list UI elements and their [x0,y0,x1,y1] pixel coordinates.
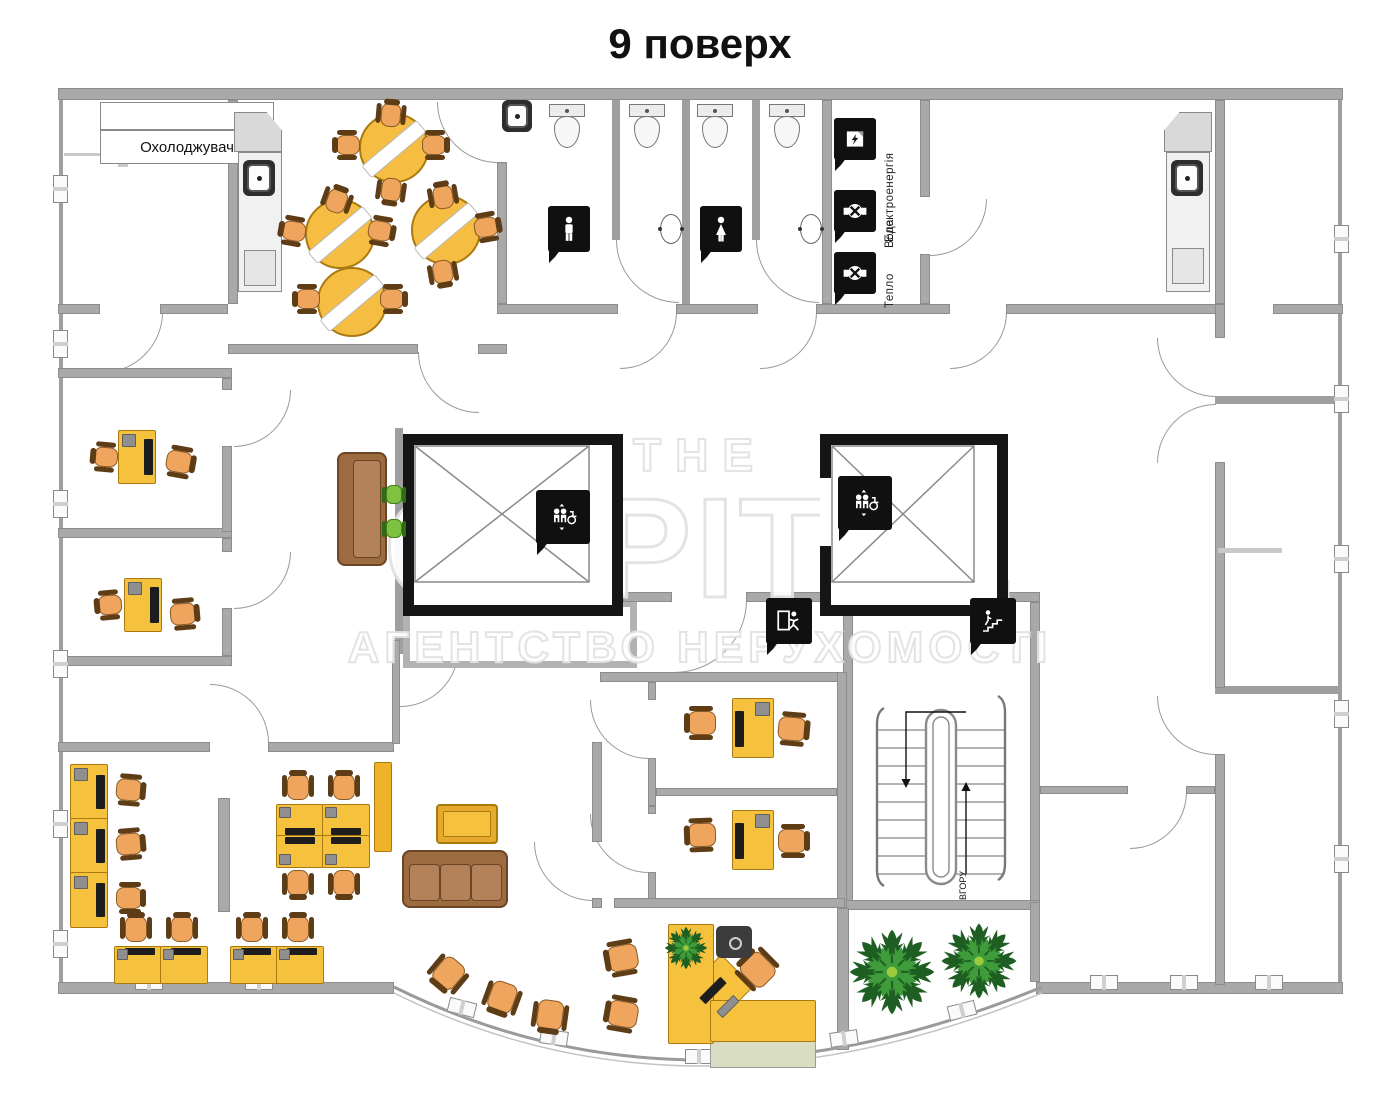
water-label: Вода [884,192,896,248]
wall [656,788,837,796]
wall [816,304,950,314]
wall [1186,786,1215,794]
door-arc [534,842,593,901]
toilet-icon [634,116,660,148]
desk [70,764,108,820]
desk [322,835,370,868]
door-arc [1130,792,1187,849]
chair [276,214,311,249]
door-arc [620,312,677,369]
wall [160,304,228,314]
door-arc [234,390,291,447]
desk [322,804,370,837]
staircase [862,686,1020,898]
chair [420,130,450,160]
desk [124,578,162,632]
door-arc [760,312,817,369]
desk [276,835,324,868]
wall [58,368,232,378]
kitchen-shelf [1172,248,1204,284]
electric-meter-icon [842,126,868,152]
window-icon [53,810,68,838]
elevator-icon [850,488,880,518]
exit-sign [766,598,812,644]
chair [282,770,314,802]
plant-icon [848,928,936,1016]
heat-valve-icon [842,260,868,286]
wall [1215,754,1225,985]
chair [332,130,362,160]
window-wall-left [59,100,63,982]
chair [776,824,810,858]
door-arc [102,312,163,373]
door-arc [950,312,1007,369]
wall [752,100,760,240]
heat-label: Тепло [884,254,896,308]
chair [426,179,461,214]
elevator-sign [536,490,590,544]
chair [120,912,152,944]
floor-plan-canvas: 9 поверх THE CAPITAL АГЕНТСТВО НЕРУХОМОС… [0,0,1400,1100]
wall [837,672,847,908]
door-arc [756,240,819,303]
wall-sink-icon [800,214,822,244]
stairs-sign [970,598,1016,644]
door-arc [210,684,269,743]
wall [268,742,394,752]
partition [1218,548,1282,553]
wall [58,742,210,752]
elevator-sign [838,476,892,530]
wall [58,304,100,314]
round-table [317,267,387,337]
desk [732,698,774,758]
wall [1006,304,1217,314]
sofa [402,850,508,908]
door-arc [616,240,679,303]
wc-women-sign [700,206,742,252]
chair [282,912,314,944]
wall [623,592,672,602]
guest-chair [601,993,643,1035]
door-arc [418,352,479,413]
kitchen-cabinet [234,112,282,152]
window-icon [1334,385,1349,413]
plant-icon [940,922,1018,1000]
chair [166,912,198,944]
electricity-sign [834,118,876,160]
green-chair [382,518,406,540]
wall [1040,786,1128,794]
wall [648,682,656,700]
window-icon [1334,545,1349,573]
chair [167,597,202,632]
door-arc [1157,338,1216,397]
chair [282,868,314,900]
wall [58,982,394,994]
elevator-icon [548,502,578,532]
sofa [337,452,387,566]
chair [328,770,360,802]
water-sign [834,190,876,232]
window-icon [1334,845,1349,873]
wall [1215,396,1341,404]
wall [592,742,602,842]
cooler-label: Охолоджувач [140,139,234,156]
wall [58,88,1343,100]
wall [612,100,620,240]
partition [218,798,230,912]
wall [600,672,845,682]
wall [920,100,930,197]
chair [426,256,461,291]
chair [364,214,399,249]
wall [682,100,690,304]
window-icon [53,330,68,358]
chair [775,711,812,748]
desk [114,946,162,984]
chair [530,996,571,1037]
wall [395,428,403,654]
wc-women-icon [708,215,734,243]
wall [614,898,845,908]
wall [228,344,418,354]
wall [58,528,232,538]
wall [592,898,602,908]
door-arc [930,199,987,256]
plant-icon [664,926,708,970]
wall [648,806,656,814]
desk [230,946,278,984]
elevator-door-gap [820,478,831,546]
wall [58,656,232,666]
desk [732,810,774,870]
window-icon [53,930,68,958]
toilet-icon [774,116,800,148]
wc-men-sign [548,206,590,252]
window-icon [1170,975,1198,990]
wall [222,446,232,532]
wall [822,100,832,304]
window-icon [1090,975,1118,990]
desk [70,872,108,928]
window-icon [685,1049,713,1064]
desk [118,430,156,484]
green-chair [382,484,406,506]
wall [1215,304,1225,338]
toilet-icon [702,116,728,148]
stairs-up-label: ВГОРУ [958,871,968,900]
window-icon [53,175,68,203]
desk [160,946,208,984]
chair [114,882,146,914]
wall [497,304,618,314]
page-title: 9 поверх [320,20,1080,68]
chair [89,441,122,474]
elevator-door-gap [590,478,601,546]
chair [683,817,718,852]
wall [676,304,758,314]
cabinet [374,762,392,852]
chair [93,589,126,622]
wall [920,254,930,304]
wall [648,758,656,806]
heat-sign [834,252,876,294]
water-valve-icon [842,198,868,224]
wall [1030,902,1040,982]
door-arc [234,552,291,609]
desk [276,804,324,837]
safe [716,926,752,958]
coffee-table [436,804,498,844]
chair [113,773,148,808]
chair [328,868,360,900]
chair [374,174,408,208]
stairs-icon [979,607,1007,635]
chair [161,443,198,480]
chair [684,706,718,740]
wall [222,538,232,552]
reception-counter [710,1040,816,1068]
kitchen-shelf [244,250,276,286]
desk [70,818,108,874]
chair [375,98,408,131]
chair [470,210,505,245]
chair [292,284,322,314]
desk [276,946,324,984]
wall [392,640,400,744]
wc-men-icon [556,215,582,243]
wall [1273,304,1343,314]
window-icon [1255,975,1283,990]
window-icon [1334,700,1349,728]
exit-icon [775,607,803,635]
wall [222,608,232,656]
chair [378,284,408,314]
wall [1215,100,1225,304]
wall [1030,602,1040,902]
wall-sink-icon [660,214,682,244]
wall [1215,686,1341,694]
wall [843,900,1040,910]
wall [222,378,232,390]
window-icon [53,490,68,518]
door-arc [1157,696,1216,755]
sink-icon [502,100,532,132]
window-icon [1334,225,1349,253]
window-icon [53,650,68,678]
kitchen-cabinet [1164,112,1212,152]
guest-chair [601,937,643,979]
door-arc [674,600,747,673]
door-arc [1157,404,1216,463]
sink-icon [243,160,275,196]
chair [113,827,148,862]
sink-icon [1171,160,1203,196]
chair [236,912,268,944]
toilet-icon [554,116,580,148]
wall [478,344,507,354]
wall [1215,462,1225,688]
